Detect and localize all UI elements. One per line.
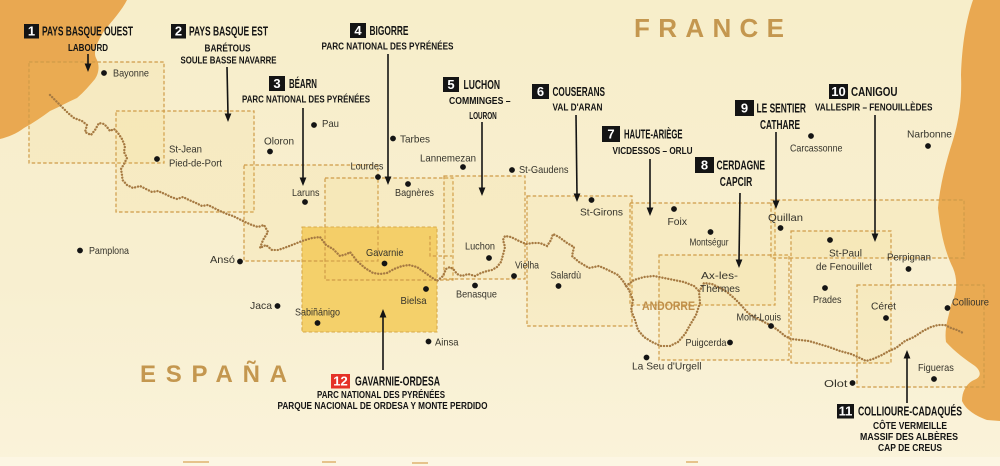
- svg-text:PARC NATIONAL DES PYRÉNÉES: PARC NATIONAL DES PYRÉNÉES: [317, 388, 445, 401]
- svg-text:Ax-les-: Ax-les-: [701, 271, 738, 282]
- svg-text:St-Jean: St-Jean: [169, 145, 202, 156]
- svg-text:ANDORRE: ANDORRE: [642, 299, 695, 313]
- svg-text:Tarbes: Tarbes: [400, 135, 430, 146]
- svg-text:12: 12: [333, 374, 347, 389]
- svg-text:Bayonne: Bayonne: [113, 69, 149, 80]
- svg-text:Gavarnie: Gavarnie: [366, 248, 404, 259]
- svg-text:SOULE BASSE NAVARRE: SOULE BASSE NAVARRE: [181, 56, 277, 67]
- svg-text:6: 6: [537, 84, 544, 99]
- svg-text:Pied-de-Port: Pied-de-Port: [169, 159, 222, 170]
- svg-text:COLLIOURE-CADAQUÉS: COLLIOURE-CADAQUÉS: [858, 404, 962, 419]
- svg-text:8: 8: [701, 158, 708, 173]
- svg-text:Puigcerda: Puigcerda: [686, 338, 727, 349]
- svg-text:3: 3: [273, 76, 280, 91]
- svg-text:CERDAGNE: CERDAGNE: [717, 158, 766, 173]
- svg-text:2: 2: [175, 24, 182, 39]
- svg-text:BARÉTOUS: BARÉTOUS: [205, 42, 251, 55]
- svg-text:Sabiñánigo: Sabiñánigo: [295, 308, 340, 319]
- svg-text:10: 10: [831, 84, 845, 99]
- svg-text:PARC NATIONAL DES PYRÉNÉES: PARC NATIONAL DES PYRÉNÉES: [242, 93, 370, 106]
- svg-text:VALLESPIR – FENOUILLÈDES: VALLESPIR – FENOUILLÈDES: [815, 101, 933, 114]
- svg-text:4: 4: [354, 23, 362, 38]
- svg-text:CATHARE: CATHARE: [760, 117, 800, 132]
- svg-text:Figueras: Figueras: [918, 363, 954, 374]
- svg-text:Quillan: Quillan: [768, 213, 803, 224]
- svg-text:MASSIF DES ALBÈRES: MASSIF DES ALBÈRES: [860, 430, 958, 443]
- svg-text:Lourdes: Lourdes: [351, 162, 384, 173]
- svg-text:BÉARN: BÉARN: [289, 76, 317, 91]
- svg-text:Benasque: Benasque: [456, 290, 497, 301]
- svg-text:La Seu d'Urgell: La Seu d'Urgell: [632, 362, 702, 373]
- svg-text:1: 1: [28, 24, 35, 39]
- svg-text:Jaca: Jaca: [250, 301, 272, 312]
- svg-text:LUCHON: LUCHON: [464, 77, 501, 92]
- svg-text:Carcassonne: Carcassonne: [790, 144, 843, 155]
- svg-text:CAP DE CREUS: CAP DE CREUS: [878, 443, 942, 454]
- svg-text:LOURON: LOURON: [469, 111, 497, 122]
- svg-text:Olot: Olot: [824, 379, 848, 390]
- svg-text:9: 9: [741, 101, 748, 116]
- svg-text:Narbonne: Narbonne: [907, 130, 952, 141]
- svg-text:LE SENTIER: LE SENTIER: [757, 101, 807, 116]
- svg-text:Thermes: Thermes: [700, 284, 740, 295]
- svg-text:PAYS BASQUE EST: PAYS BASQUE EST: [189, 24, 268, 39]
- svg-text:Foix: Foix: [668, 217, 688, 228]
- svg-text:Mont-Louis: Mont-Louis: [737, 313, 782, 324]
- svg-text:St-Paul: St-Paul: [829, 249, 862, 260]
- svg-text:Oloron: Oloron: [264, 137, 294, 148]
- svg-text:COMMINGES –: COMMINGES –: [449, 96, 511, 107]
- svg-text:Montségur: Montségur: [690, 238, 729, 249]
- svg-text:Perpignan: Perpignan: [887, 253, 931, 264]
- svg-text:CÔTE VERMEILLE: CÔTE VERMEILLE: [873, 419, 947, 432]
- svg-text:LABOURD: LABOURD: [68, 43, 108, 54]
- svg-text:VAL D'ARAN: VAL D'ARAN: [553, 103, 603, 114]
- svg-text:Lannemezan: Lannemezan: [420, 154, 476, 165]
- svg-text:St-Girons: St-Girons: [580, 208, 623, 219]
- svg-text:5: 5: [447, 77, 454, 92]
- svg-text:Salardù: Salardù: [551, 271, 582, 282]
- svg-text:BIGORRE: BIGORRE: [370, 23, 409, 38]
- svg-text:PARC NATIONAL DES PYRÉNÉES: PARC NATIONAL DES PYRÉNÉES: [322, 40, 454, 53]
- svg-text:CANIGOU: CANIGOU: [851, 84, 898, 99]
- svg-text:Prades: Prades: [813, 295, 842, 306]
- svg-text:Ansó: Ansó: [210, 255, 235, 266]
- svg-text:HAUTE-ARIÈGE: HAUTE-ARIÈGE: [624, 127, 683, 142]
- svg-text:Bagnères: Bagnères: [395, 188, 434, 199]
- svg-text:Vielha: Vielha: [515, 261, 539, 272]
- svg-text:Laruns: Laruns: [292, 188, 320, 199]
- svg-text:Luchon: Luchon: [465, 242, 495, 253]
- svg-text:11: 11: [839, 404, 853, 419]
- svg-text:Céret: Céret: [871, 302, 896, 313]
- svg-text:Ainsa: Ainsa: [435, 338, 459, 349]
- svg-text:St-Gaudens: St-Gaudens: [519, 165, 569, 176]
- svg-text:Pamplona: Pamplona: [89, 246, 129, 257]
- svg-text:Collioure: Collioure: [952, 298, 989, 309]
- svg-text:de Fenouillet: de Fenouillet: [816, 262, 872, 273]
- svg-text:Bielsa: Bielsa: [401, 296, 427, 307]
- svg-text:COUSERANS: COUSERANS: [553, 84, 606, 99]
- svg-text:VICDESSOS – ORLU: VICDESSOS – ORLU: [613, 146, 693, 157]
- svg-text:Pau: Pau: [322, 119, 339, 130]
- svg-text:CAPCIR: CAPCIR: [720, 174, 753, 189]
- svg-text:GAVARNIE-ORDESA: GAVARNIE-ORDESA: [355, 374, 440, 389]
- svg-text:7: 7: [607, 127, 614, 142]
- svg-text:PARQUE NACIONAL DE ORDESA Y MO: PARQUE NACIONAL DE ORDESA Y MONTE PERDID…: [278, 401, 488, 412]
- svg-text:PAYS BASQUE OUEST: PAYS BASQUE OUEST: [42, 24, 133, 39]
